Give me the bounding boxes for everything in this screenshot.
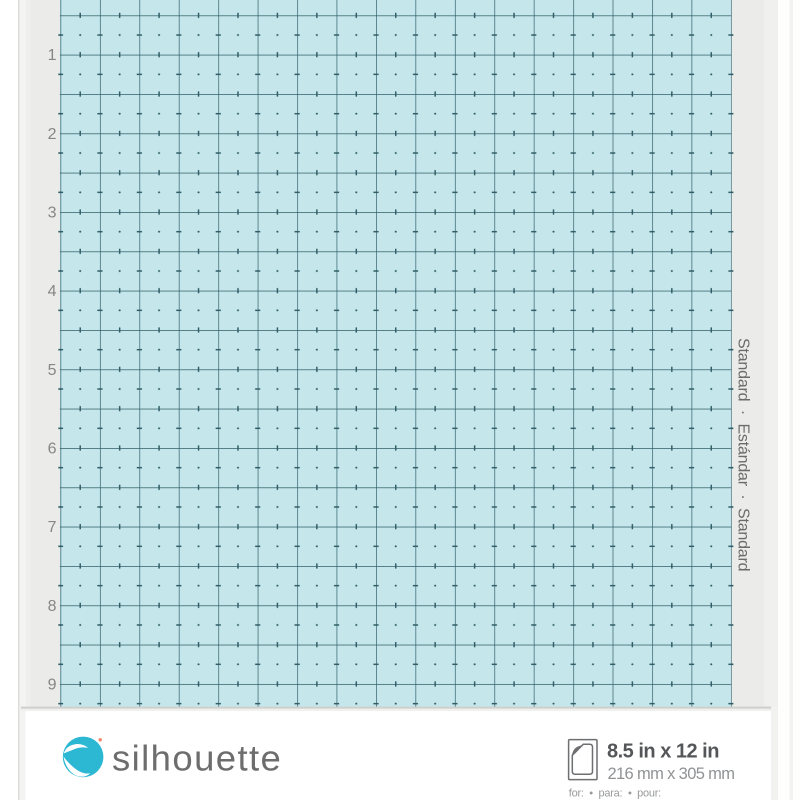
svg-text:2: 2 [48, 126, 57, 143]
svg-text:6: 6 [48, 441, 57, 458]
svg-text:5: 5 [48, 362, 57, 379]
svg-text:silhouette: silhouette [112, 738, 282, 779]
svg-text:8.5 in x 12 in: 8.5 in x 12 in [607, 741, 719, 763]
svg-text:Standard · Estándar · Stan: Standard · Estándar · Standard [735, 338, 752, 571]
svg-text:8: 8 [48, 598, 57, 615]
svg-text:3: 3 [48, 205, 57, 222]
svg-text:9: 9 [48, 677, 57, 694]
svg-text:1: 1 [48, 47, 57, 64]
svg-text:4: 4 [48, 283, 57, 300]
svg-text:216 mm x 305 mm: 216 mm x 305 mm [608, 765, 735, 783]
svg-text:7: 7 [48, 519, 57, 536]
svg-text:for: • para: • pour:: for: • para: • pour: [569, 787, 661, 799]
